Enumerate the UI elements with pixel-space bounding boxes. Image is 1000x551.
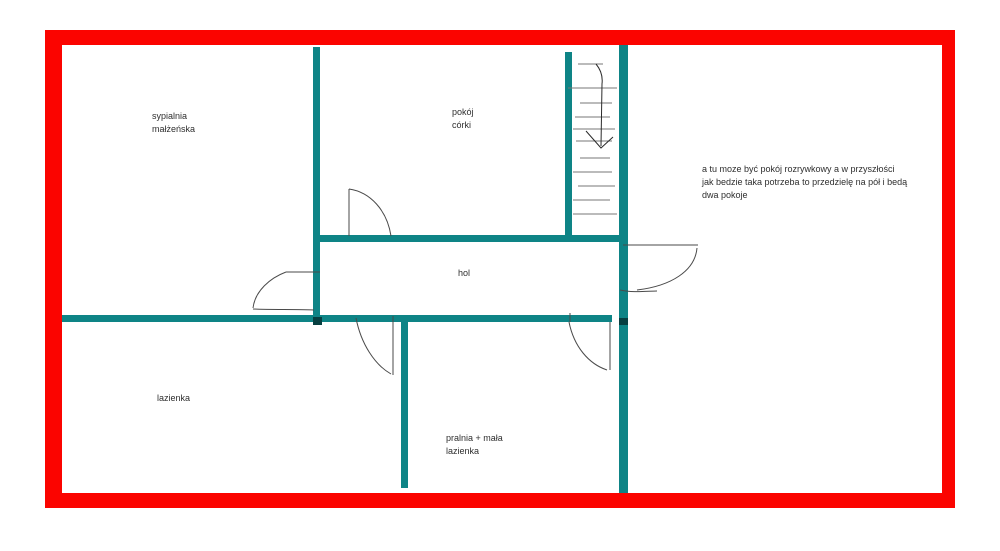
annotation-line2: jak bedzie taka potrzeba to przedzielę n…: [702, 176, 907, 189]
label-bathroom: lazienka: [157, 392, 190, 405]
label-master-bedroom-line1: sypialnia: [152, 110, 195, 123]
floor-plan-drawing: [0, 0, 1000, 551]
door-master-bedroom: [253, 272, 320, 310]
wall-laundry-left-vertical: [401, 315, 408, 488]
frame-top: [45, 30, 955, 45]
stairs-direction-arrow: [586, 64, 613, 148]
wall-bedroom-right-vertical: [313, 47, 320, 322]
annotation-right-room: a tu moze być pokój rozrywkowy a w przys…: [702, 163, 907, 202]
interior-walls: [62, 45, 628, 493]
label-laundry: pralnia + mała lazienka: [446, 432, 503, 458]
wall-stairwell-left-vertical: [565, 52, 572, 242]
label-hall-text: hol: [458, 267, 470, 280]
door-right-room: [620, 245, 698, 292]
staircase: [568, 64, 617, 214]
floor-plan-page: sypialnia małżeńska pokój córki hol lazi…: [0, 0, 1000, 551]
wall-hall-bottom-horizontal: [62, 315, 612, 322]
label-daughters-room-line2: córki: [452, 119, 474, 132]
label-hall: hol: [458, 267, 470, 280]
wall-main-right-vertical: [619, 45, 628, 493]
label-laundry-line1: pralnia + mała: [446, 432, 503, 445]
label-bathroom-text: lazienka: [157, 392, 190, 405]
label-master-bedroom: sypialnia małżeńska: [152, 110, 195, 136]
frame-left: [45, 30, 62, 508]
annotation-line3: dwa pokoje: [702, 189, 907, 202]
label-daughters-room: pokój córki: [452, 106, 474, 132]
annotation-line1: a tu moze być pokój rozrywkowy a w przys…: [702, 163, 907, 176]
frame-right: [942, 30, 955, 508]
wall-junction-left: [313, 317, 322, 325]
label-master-bedroom-line2: małżeńska: [152, 123, 195, 136]
wall-hall-top-horizontal: [313, 235, 628, 242]
frame-bottom: [45, 493, 955, 508]
label-daughters-room-line1: pokój: [452, 106, 474, 119]
label-laundry-line2: lazienka: [446, 445, 503, 458]
wall-junction-right: [619, 318, 628, 325]
door-daughters-room: [349, 189, 391, 236]
door-bathroom: [356, 316, 393, 375]
